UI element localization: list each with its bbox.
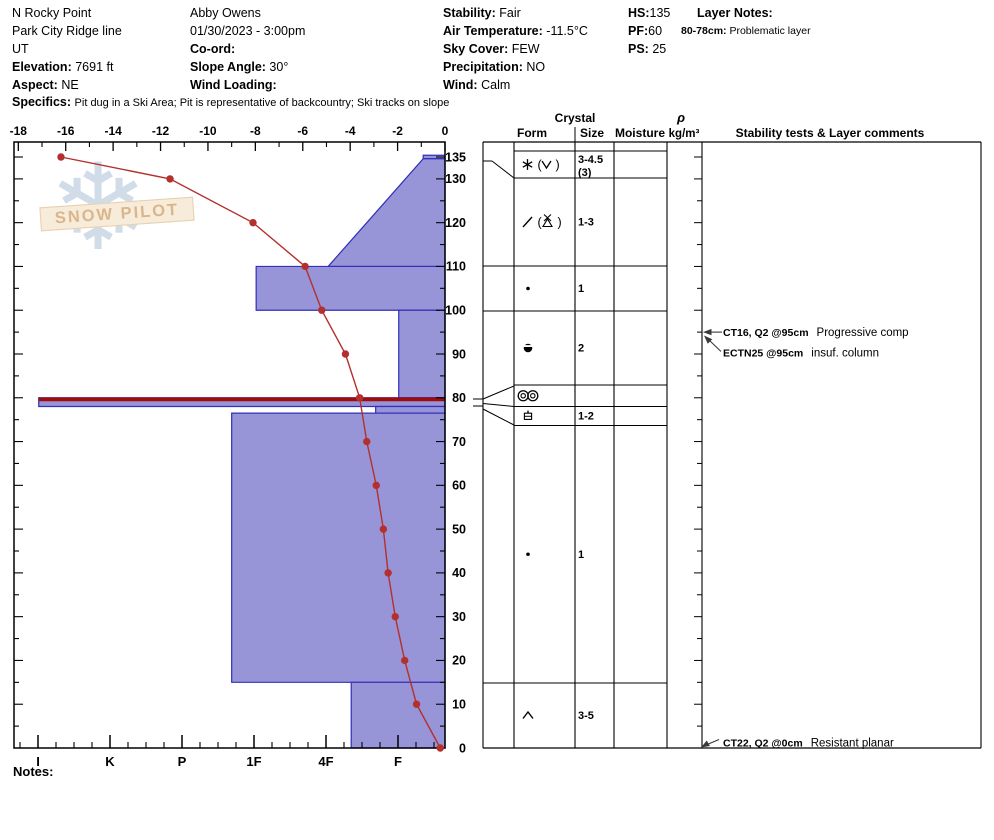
svg-text:120: 120 <box>445 216 466 230</box>
svg-text:K: K <box>105 754 115 769</box>
svg-text:3-4.5: 3-4.5 <box>578 154 603 166</box>
svg-text:4F: 4F <box>318 754 333 769</box>
svg-text:70: 70 <box>452 435 466 449</box>
svg-text:100: 100 <box>445 304 466 318</box>
svg-text:30: 30 <box>452 610 466 624</box>
svg-text:P: P <box>178 754 187 769</box>
svg-text:1: 1 <box>578 549 584 561</box>
svg-text:-6: -6 <box>297 124 308 138</box>
svg-text:-10: -10 <box>199 124 217 138</box>
svg-text:): ) <box>558 216 562 230</box>
svg-text:kg/m³: kg/m³ <box>669 128 700 140</box>
svg-text:0: 0 <box>459 741 466 755</box>
svg-text:40: 40 <box>452 566 466 580</box>
svg-text:1: 1 <box>578 283 584 295</box>
svg-text:20: 20 <box>452 654 466 668</box>
svg-text:ECTN25 @95cminsuf. column: ECTN25 @95cminsuf. column <box>723 348 879 360</box>
svg-text:130: 130 <box>445 172 466 186</box>
svg-text:80: 80 <box>452 391 466 405</box>
svg-text:1F: 1F <box>246 754 261 769</box>
svg-text:0: 0 <box>442 124 449 138</box>
snowpilot-profile-page: ❄ SNOW PILOT N Rocky Point Park City Rid… <box>0 0 994 840</box>
svg-text:110: 110 <box>446 260 466 274</box>
svg-text:(3): (3) <box>578 167 592 179</box>
notes-label: Notes: <box>13 764 53 779</box>
svg-text:2: 2 <box>578 343 584 355</box>
svg-text:-12: -12 <box>152 124 170 138</box>
svg-text:-8: -8 <box>250 124 261 138</box>
svg-text:-2: -2 <box>392 124 403 138</box>
svg-text:60: 60 <box>452 479 466 493</box>
svg-text:50: 50 <box>452 522 466 536</box>
svg-text:-16: -16 <box>57 124 75 138</box>
svg-text:(: ( <box>538 158 543 172</box>
svg-text:1-3: 1-3 <box>578 217 594 229</box>
svg-text:-4: -4 <box>345 124 356 138</box>
svg-text:10: 10 <box>452 698 466 712</box>
svg-text:(: ( <box>538 216 543 230</box>
svg-text:): ) <box>556 158 560 172</box>
svg-text:3-5: 3-5 <box>578 710 594 722</box>
svg-text:90: 90 <box>452 347 466 361</box>
svg-text:Stability tests & Layer commen: Stability tests & Layer comments <box>736 126 925 140</box>
svg-text:Size: Size <box>580 126 604 140</box>
svg-text:-18: -18 <box>10 124 28 138</box>
svg-text:1-2: 1-2 <box>578 411 594 423</box>
svg-text:Form: Form <box>517 126 547 140</box>
svg-text:F: F <box>394 754 402 769</box>
svg-text:CT16, Q2 @95cmProgressive comp: CT16, Q2 @95cmProgressive comp <box>723 327 909 339</box>
svg-text:135: 135 <box>445 150 466 164</box>
svg-text:Moisture: Moisture <box>615 126 665 140</box>
svg-text:ρ: ρ <box>676 110 685 125</box>
svg-text:Crystal: Crystal <box>555 111 596 125</box>
svg-text:-14: -14 <box>104 124 122 138</box>
snow-profile-chart: -18-16-14-12-10-8-6-4-201351301201101009… <box>0 0 994 840</box>
